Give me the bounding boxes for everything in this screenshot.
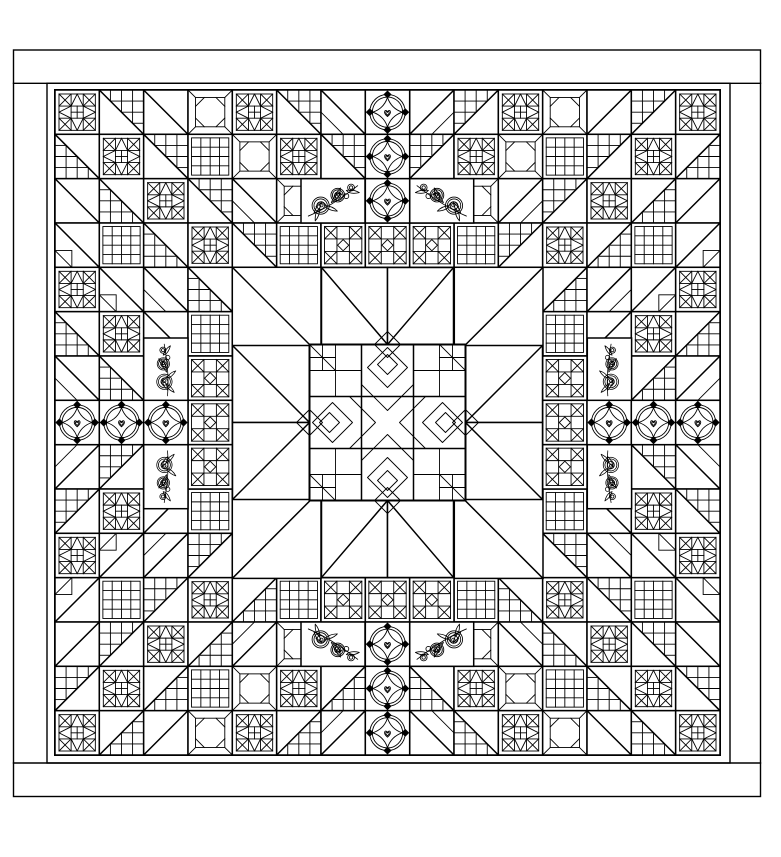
wreath-block bbox=[365, 622, 409, 666]
ray-triangle-block bbox=[388, 501, 454, 578]
gridsq-block bbox=[188, 312, 232, 356]
hstsq-block bbox=[99, 267, 143, 311]
gridsq-block bbox=[188, 134, 232, 178]
hstgrid-block bbox=[277, 711, 321, 755]
star-block bbox=[631, 312, 675, 356]
corner-triangle-block bbox=[232, 490, 321, 579]
hstsq-block bbox=[676, 578, 720, 622]
hstgrid-block bbox=[232, 578, 276, 622]
hstgrid-block bbox=[498, 578, 542, 622]
corner-triangle-block bbox=[454, 490, 543, 579]
hst-block bbox=[676, 356, 720, 400]
chain-block bbox=[543, 356, 587, 400]
wreath-block bbox=[55, 400, 99, 444]
corner-triangle-block bbox=[232, 267, 321, 356]
star-block bbox=[188, 223, 232, 267]
gridsq-block bbox=[188, 666, 232, 710]
hst-block bbox=[498, 622, 542, 666]
hstgrid-block bbox=[55, 489, 99, 533]
star-block bbox=[277, 134, 321, 178]
wreath-block bbox=[365, 134, 409, 178]
hstgrid-block bbox=[188, 179, 232, 223]
hstgrid-block bbox=[188, 622, 232, 666]
hstgrid-block bbox=[99, 90, 143, 134]
hst-block bbox=[55, 622, 99, 666]
wreath-block bbox=[99, 400, 143, 444]
star-block bbox=[454, 134, 498, 178]
hstgrid-block bbox=[543, 533, 587, 577]
star-block bbox=[55, 533, 99, 577]
chain-block bbox=[188, 356, 232, 400]
hstgrid-block bbox=[99, 445, 143, 489]
hstgrid-block bbox=[321, 666, 365, 710]
framesq-block bbox=[543, 711, 587, 755]
hst-block bbox=[587, 533, 631, 577]
rose-spray-block bbox=[142, 338, 192, 402]
hstsq-block bbox=[99, 533, 143, 577]
ray-triangle-block bbox=[466, 423, 543, 500]
star-block bbox=[631, 666, 675, 710]
hstgrid-block bbox=[631, 356, 675, 400]
star-block bbox=[144, 179, 188, 223]
framesq-block bbox=[188, 90, 232, 134]
gridsq-block bbox=[277, 578, 321, 622]
ray-triangle-block bbox=[233, 346, 310, 423]
wreath-block bbox=[144, 400, 188, 444]
framesq-block bbox=[498, 134, 542, 178]
rose-spray-block bbox=[583, 338, 633, 402]
hstgrid-block bbox=[277, 90, 321, 134]
hstgrid-block bbox=[321, 134, 365, 178]
hstgrid-block bbox=[631, 179, 675, 223]
hstgrid-block bbox=[676, 312, 720, 356]
gridsq-block bbox=[188, 489, 232, 533]
hst-block bbox=[676, 445, 720, 489]
hstgrid-block bbox=[587, 223, 631, 267]
hst-block bbox=[498, 179, 542, 223]
chain-block bbox=[365, 578, 409, 622]
hstgrid-block bbox=[99, 356, 143, 400]
chain-block bbox=[188, 400, 232, 444]
hst-block bbox=[144, 90, 188, 134]
star-block bbox=[676, 533, 720, 577]
hst-block bbox=[410, 90, 454, 134]
hstgrid-block bbox=[188, 267, 232, 311]
chain-block bbox=[365, 223, 409, 267]
star-block bbox=[587, 179, 631, 223]
hst-block bbox=[232, 622, 276, 666]
hstgrid-block bbox=[410, 134, 454, 178]
hst-block bbox=[321, 711, 365, 755]
wreath-block bbox=[365, 90, 409, 134]
star-block bbox=[676, 90, 720, 134]
hstgrid-block bbox=[99, 622, 143, 666]
gridsq-block bbox=[99, 223, 143, 267]
star-block bbox=[587, 622, 631, 666]
star-block bbox=[631, 134, 675, 178]
framesq-block bbox=[232, 666, 276, 710]
wreath-block bbox=[587, 400, 631, 444]
rose-spray-block bbox=[410, 179, 474, 223]
hstgrid-block bbox=[454, 90, 498, 134]
hstgrid-block bbox=[99, 179, 143, 223]
hstgrid-block bbox=[232, 223, 276, 267]
hst-block bbox=[587, 711, 631, 755]
ray-triangle-block bbox=[322, 268, 388, 345]
hstgrid-block bbox=[55, 312, 99, 356]
hst-block bbox=[144, 711, 188, 755]
rose-spray-block bbox=[301, 179, 365, 223]
hst-block bbox=[55, 356, 99, 400]
chain-block bbox=[543, 445, 587, 489]
star-block bbox=[55, 711, 99, 755]
gridsq-block bbox=[543, 666, 587, 710]
star-block bbox=[99, 489, 143, 533]
wreath-block bbox=[631, 400, 675, 444]
hst-block bbox=[144, 267, 188, 311]
hstgrid-block bbox=[631, 622, 675, 666]
gridsq-block bbox=[631, 578, 675, 622]
hstsq-block bbox=[631, 267, 675, 311]
quilt-page bbox=[0, 0, 781, 857]
framesq-block bbox=[188, 711, 232, 755]
framesq-block bbox=[543, 90, 587, 134]
gridsq-block bbox=[543, 312, 587, 356]
hst-block bbox=[321, 90, 365, 134]
center-medallion bbox=[297, 332, 479, 514]
star-block bbox=[543, 578, 587, 622]
chain-block bbox=[321, 223, 365, 267]
hstgrid-block bbox=[410, 666, 454, 710]
hstgrid-block bbox=[144, 666, 188, 710]
gridsq-block bbox=[277, 223, 321, 267]
chain-block bbox=[410, 578, 454, 622]
hst-block bbox=[587, 267, 631, 311]
star-block bbox=[232, 711, 276, 755]
hst-block bbox=[410, 711, 454, 755]
hstsq-block bbox=[55, 578, 99, 622]
hstsq-block bbox=[676, 223, 720, 267]
star-block bbox=[144, 622, 188, 666]
hstgrid-block bbox=[543, 622, 587, 666]
hstgrid-block bbox=[631, 90, 675, 134]
hstgrid-block bbox=[587, 666, 631, 710]
hst-block bbox=[676, 622, 720, 666]
gridsq-block bbox=[631, 223, 675, 267]
hstgrid-block bbox=[144, 134, 188, 178]
wreath-block bbox=[365, 179, 409, 223]
star-block bbox=[498, 90, 542, 134]
chain-block bbox=[410, 223, 454, 267]
hstsq-block bbox=[55, 223, 99, 267]
hst-block bbox=[587, 90, 631, 134]
hst-block bbox=[144, 533, 188, 577]
hstgrid-block bbox=[543, 267, 587, 311]
rose-spray-block bbox=[410, 622, 474, 666]
hstgrid-block bbox=[543, 179, 587, 223]
star-block bbox=[498, 711, 542, 755]
hstgrid-block bbox=[55, 134, 99, 178]
quilt-block-line-drawing bbox=[0, 0, 781, 857]
hstgrid-block bbox=[99, 711, 143, 755]
star-block bbox=[99, 312, 143, 356]
hst-block bbox=[55, 445, 99, 489]
wreath-block bbox=[676, 400, 720, 444]
rose-spray-block bbox=[301, 622, 365, 666]
ray-triangle-block bbox=[233, 423, 310, 500]
star-block bbox=[676, 267, 720, 311]
star-block bbox=[676, 711, 720, 755]
wreath-block bbox=[365, 711, 409, 755]
hstgrid-block bbox=[144, 578, 188, 622]
hstgrid-block bbox=[144, 223, 188, 267]
hstgrid-block bbox=[454, 711, 498, 755]
star-block bbox=[454, 666, 498, 710]
chain-block bbox=[543, 400, 587, 444]
hst-block bbox=[676, 179, 720, 223]
gridsq-block bbox=[543, 134, 587, 178]
star-block bbox=[55, 90, 99, 134]
star-block bbox=[99, 666, 143, 710]
star-block bbox=[232, 90, 276, 134]
gridsq-block bbox=[543, 489, 587, 533]
star-block bbox=[543, 223, 587, 267]
hstgrid-block bbox=[587, 134, 631, 178]
gridsq-block bbox=[99, 578, 143, 622]
gridsq-block bbox=[454, 223, 498, 267]
framesq-block bbox=[232, 134, 276, 178]
hstgrid-block bbox=[676, 666, 720, 710]
hstgrid-block bbox=[188, 533, 232, 577]
framesq-block bbox=[498, 666, 542, 710]
star-block bbox=[188, 578, 232, 622]
hst-block bbox=[55, 179, 99, 223]
ray-triangle-block bbox=[388, 268, 454, 345]
hst-block bbox=[232, 179, 276, 223]
page: { "canvas": {"width": 781, "height": 857… bbox=[0, 0, 781, 857]
hstgrid-block bbox=[55, 666, 99, 710]
gridsq-block bbox=[454, 578, 498, 622]
corner-triangle-block bbox=[454, 267, 543, 356]
star-block bbox=[99, 134, 143, 178]
chain-block bbox=[188, 445, 232, 489]
rose-spray-block bbox=[583, 445, 633, 509]
hstsq-block bbox=[631, 533, 675, 577]
chain-block bbox=[321, 578, 365, 622]
hstgrid-block bbox=[676, 134, 720, 178]
hstgrid-block bbox=[587, 578, 631, 622]
hstgrid-block bbox=[631, 445, 675, 489]
star-block bbox=[277, 666, 321, 710]
star-block bbox=[55, 267, 99, 311]
wreath-block bbox=[365, 666, 409, 710]
ray-triangle-block bbox=[466, 346, 543, 423]
rose-spray-block bbox=[142, 445, 192, 509]
hstgrid-block bbox=[631, 711, 675, 755]
star-block bbox=[631, 489, 675, 533]
ray-triangle-block bbox=[322, 501, 388, 578]
hstgrid-block bbox=[498, 223, 542, 267]
hstgrid-block bbox=[676, 489, 720, 533]
